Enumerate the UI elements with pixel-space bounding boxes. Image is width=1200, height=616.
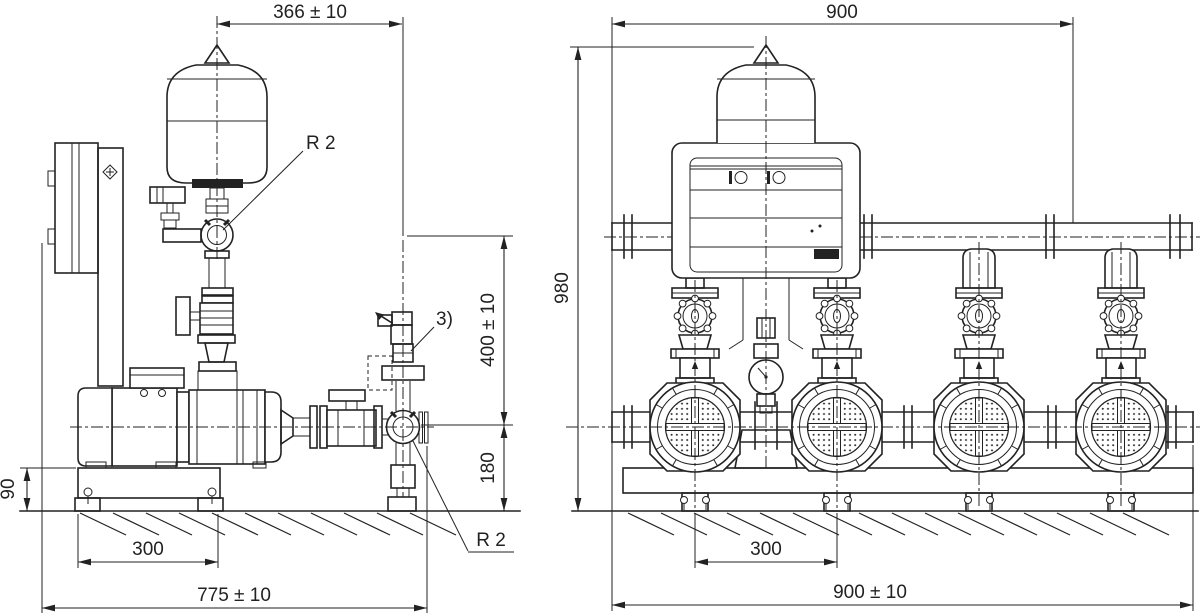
dim-side-top-width: 366 ± 10 — [273, 2, 347, 23]
label-r2-bottom: R 2 — [476, 530, 506, 551]
side-base-frame — [75, 468, 223, 511]
label-r2-top: R 2 — [306, 133, 336, 154]
dim-side-base-height: 90 — [0, 478, 19, 499]
dim-front-overall-height: 980 — [552, 272, 573, 304]
nameplate — [814, 249, 839, 259]
dim-front-pump-spacing: 300 — [750, 539, 782, 560]
valve-handwheel-icon — [329, 390, 365, 401]
side-floor — [20, 511, 520, 535]
front-view: 900 980 300 900 ± 10 — [552, 2, 1200, 611]
dimension-drawing: 366 ± 10 90 300 775 ± 10 400 ± 10 180 R … — [0, 0, 1200, 616]
side-discharge-line — [293, 390, 428, 448]
flow-arrow-icon — [381, 316, 392, 323]
dim-side-height-upper: 400 ± 10 — [478, 293, 499, 367]
front-pump-row — [650, 382, 1166, 511]
side-view: 366 ± 10 90 300 775 ± 10 400 ± 10 180 R … — [0, 2, 520, 613]
drawing-canvas: 366 ± 10 90 300 775 ± 10 400 ± 10 180 R … — [0, 0, 1200, 616]
dim-side-overall-length: 775 ± 10 — [197, 585, 271, 606]
side-pressure-gauge — [150, 187, 201, 242]
side-control-box — [48, 143, 123, 386]
dim-side-height-lower: 180 — [478, 452, 499, 484]
side-pump-unit — [78, 368, 293, 468]
valve-handwheel-icon — [176, 297, 190, 335]
dim-front-top-width: 900 — [826, 2, 858, 23]
dim-front-base-length: 900 ± 10 — [833, 582, 907, 603]
label-note-3: 3) — [436, 309, 453, 330]
front-floor — [572, 511, 1198, 535]
indicator-icon — [729, 171, 732, 184]
side-suction-valve-column — [176, 251, 237, 390]
dim-side-anchor-spacing: 300 — [132, 539, 164, 560]
indicator-icon — [767, 171, 770, 184]
